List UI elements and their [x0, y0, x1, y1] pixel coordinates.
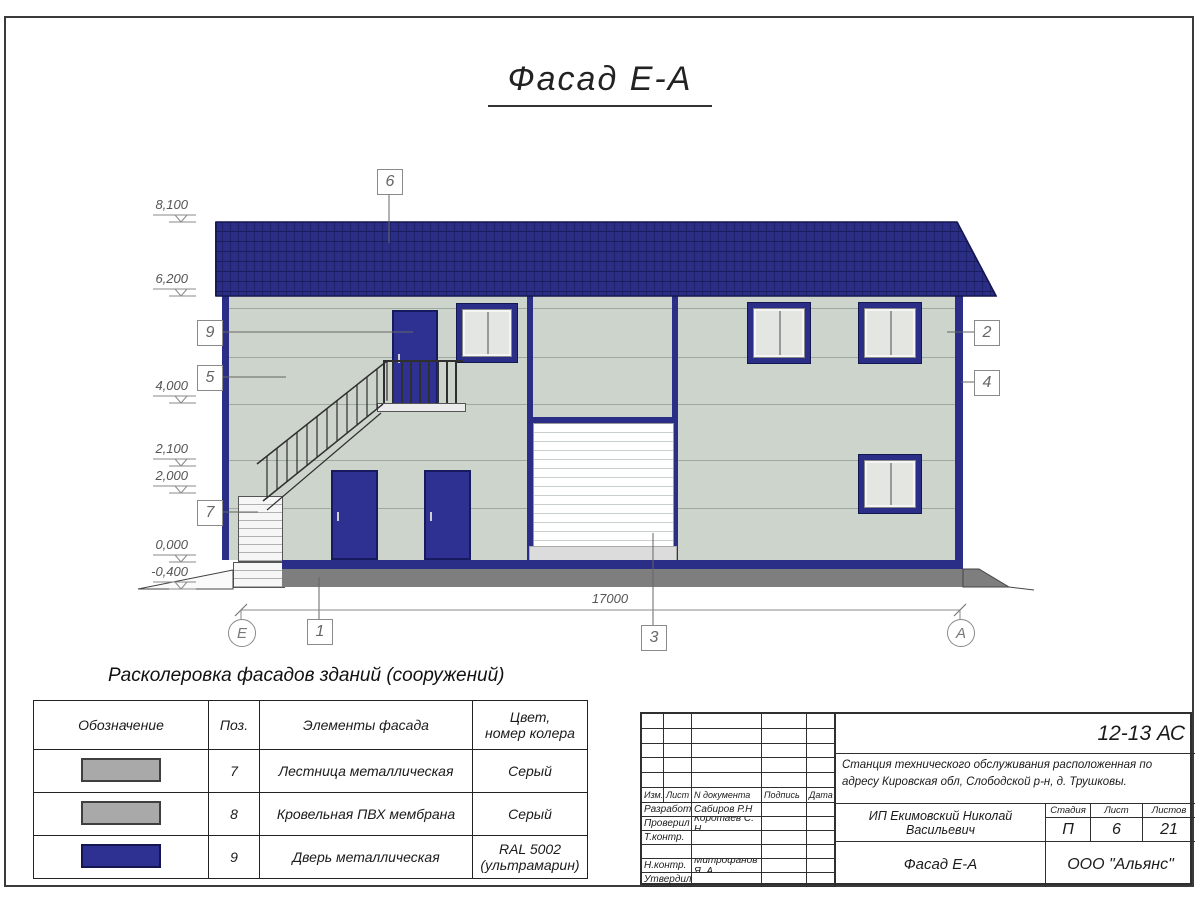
revision-cell — [762, 714, 807, 729]
staff-name: Митрофанов Я. А. — [692, 859, 762, 873]
staff-blank — [762, 873, 807, 887]
legend-pos: 9 — [209, 836, 260, 879]
revision-cell — [642, 773, 664, 788]
elevation-mark: 6,200 — [126, 271, 188, 286]
revision-cell — [762, 773, 807, 788]
revision-cell — [762, 744, 807, 759]
revision-cell — [762, 729, 807, 744]
elevation-mark: 0,000 — [126, 537, 188, 552]
staff-role: Разработал — [642, 803, 692, 817]
legend-row: 7Лестница металлическаяСерый — [34, 750, 588, 793]
revision-header: Подпись — [762, 788, 807, 803]
drawing-title-text: Фасад Е-А — [488, 60, 713, 107]
staff-name: Сабиров Р.Н — [692, 803, 762, 817]
elevation-mark: -0,400 — [126, 564, 188, 579]
revision-cell — [807, 758, 835, 773]
axis-bubble-e: Е — [228, 619, 256, 647]
revision-cell — [642, 744, 664, 759]
drawing-title: Фасад Е-А — [400, 60, 800, 107]
revision-cell — [664, 758, 692, 773]
plinth-trim — [282, 560, 963, 569]
sheets-total: 21 — [1143, 818, 1195, 842]
revision-cell — [807, 729, 835, 744]
callout-4: 4 — [974, 370, 1000, 396]
stage-value: П — [1046, 818, 1091, 842]
sheets-label: Листов — [1143, 804, 1195, 818]
legend-table: Обозначение Поз. Элементы фасада Цвет, н… — [33, 700, 588, 879]
legend-color: Серый — [473, 793, 588, 836]
elevation-mark: 4,000 — [126, 378, 188, 393]
sheet-label: Лист — [1091, 804, 1143, 818]
revision-cell — [692, 729, 762, 744]
callout-7: 7 — [197, 500, 223, 526]
panel-joint — [229, 404, 955, 405]
staff-role: Т.контр. — [642, 831, 692, 845]
revision-header: Лист — [664, 788, 692, 803]
staff-role: Н.контр. — [642, 859, 692, 873]
legend-element: Дверь металлическая — [260, 836, 473, 879]
panel-joint — [229, 308, 955, 309]
window-upper-right — [858, 302, 922, 364]
balcony-railing — [383, 360, 463, 406]
staff-name — [692, 831, 762, 845]
legend-element: Кровельная ПВХ мембрана — [260, 793, 473, 836]
staff-role: Утвердил — [642, 873, 692, 887]
legend-color: Серый — [473, 750, 588, 793]
callout-9: 9 — [197, 320, 223, 346]
revision-cell — [807, 744, 835, 759]
color-swatch — [81, 758, 161, 782]
stage-label: Стадия — [1046, 804, 1091, 818]
project-description: Станция технического обслуживания распол… — [836, 754, 1195, 804]
elevation-mark: 2,100 — [126, 441, 188, 456]
document-code: 12-13 АС — [836, 714, 1195, 754]
dimension-value: 17000 — [570, 591, 650, 606]
staff-blank — [762, 845, 807, 859]
metal-stair-steps — [238, 496, 283, 562]
callout-3: 3 — [641, 625, 667, 651]
color-swatch — [81, 801, 161, 825]
revision-header: N документа — [692, 788, 762, 803]
legend-col-designation: Обозначение — [34, 701, 209, 750]
legend-row: 9Дверь металлическаяRAL 5002 (ультрамари… — [34, 836, 588, 879]
staff-blank — [807, 803, 835, 817]
revision-cell — [642, 714, 664, 729]
axis-bubble-a: А — [947, 619, 975, 647]
staff-name — [692, 845, 762, 859]
revision-cell — [664, 714, 692, 729]
legend-col-color: Цвет, номер колера — [473, 701, 588, 750]
staff-blank — [807, 831, 835, 845]
staff-blank — [807, 873, 835, 887]
callout-6: 6 — [377, 169, 403, 195]
ground-door-1 — [331, 470, 378, 560]
window-lower-right — [858, 454, 922, 514]
staff-grid: РазработалСабиров Р.НПроверилКоротаев С.… — [642, 803, 835, 887]
sheet-number: 6 — [1091, 818, 1143, 842]
client-name: ИП Екимовский Николай Васильевич — [836, 804, 1046, 841]
staff-blank — [807, 859, 835, 873]
staff-blank — [807, 845, 835, 859]
legend-pos: 8 — [209, 793, 260, 836]
ground-door-2 — [424, 470, 471, 560]
stair-base — [233, 562, 285, 588]
roof-shingles — [215, 222, 997, 296]
staff-name — [692, 873, 762, 887]
revision-cell — [807, 773, 835, 788]
revision-cell — [642, 758, 664, 773]
legend-row: 8Кровельная ПВХ мембранаСерый — [34, 793, 588, 836]
staff-role: Проверил — [642, 817, 692, 831]
revision-cell — [692, 758, 762, 773]
staff-blank — [762, 803, 807, 817]
legend-heading: Расколеровка фасадов зданий (сооружений) — [108, 665, 505, 687]
revision-cell — [664, 773, 692, 788]
legend-pos: 7 — [209, 750, 260, 793]
staff-blank — [762, 817, 807, 831]
title-block-right: 12-13 АС Станция технического обслуживан… — [835, 714, 1195, 887]
window-upper-left — [456, 303, 518, 363]
revision-cell — [692, 744, 762, 759]
legend-color: RAL 5002 (ультрамарин) — [473, 836, 588, 879]
legend-col-element: Элементы фасада — [260, 701, 473, 750]
callout-5: 5 — [197, 365, 223, 391]
garage-roller-door — [533, 423, 674, 548]
staff-name: Коротаев С. Н. — [692, 817, 762, 831]
staff-blank — [762, 831, 807, 845]
panel-joint — [229, 357, 955, 358]
revision-header: Изм. — [642, 788, 664, 803]
staff-role — [642, 845, 692, 859]
revision-cell — [642, 729, 664, 744]
callout-1: 1 — [307, 619, 333, 645]
elevation-mark: 2,000 — [126, 468, 188, 483]
title-block: Изм.ЛистN документаПодписьДата Разработа… — [640, 712, 1192, 885]
revision-cell — [762, 758, 807, 773]
balcony-platform — [377, 403, 466, 412]
staff-blank — [762, 859, 807, 873]
revision-cell — [692, 714, 762, 729]
revision-cell — [807, 714, 835, 729]
window-upper-mid — [747, 302, 811, 364]
revision-cell — [664, 744, 692, 759]
elevation-mark: 8,100 — [126, 197, 188, 212]
revision-header: Дата — [807, 788, 835, 803]
revision-cell — [692, 773, 762, 788]
revision-grid: Изм.ЛистN документаПодписьДата — [642, 714, 835, 803]
stage-table: Стадия Лист Листов П 6 21 — [1046, 804, 1195, 841]
plinth — [282, 569, 963, 587]
revision-cell — [664, 729, 692, 744]
sheet-name: Фасад Е-А — [836, 842, 1046, 887]
legend-col-pos: Поз. — [209, 701, 260, 750]
color-swatch — [81, 844, 161, 868]
callout-2: 2 — [974, 320, 1000, 346]
legend-element: Лестница металлическая — [260, 750, 473, 793]
staff-blank — [807, 817, 835, 831]
company-name: ООО "Альянс" — [1046, 842, 1195, 887]
